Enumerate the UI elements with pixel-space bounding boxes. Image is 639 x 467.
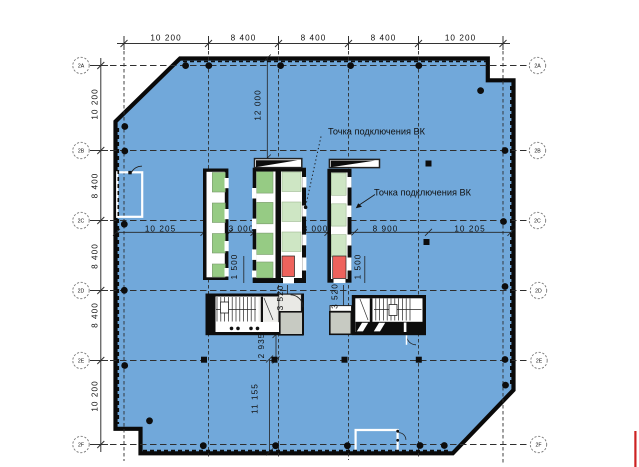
svg-text:10 200: 10 200 — [150, 34, 181, 43]
svg-text:2F: 2F — [535, 443, 541, 449]
svg-text:8 900: 8 900 — [373, 225, 399, 234]
svg-text:11 155: 11 155 — [251, 383, 260, 414]
svg-text:2D: 2D — [535, 289, 542, 295]
svg-text:1 500: 1 500 — [354, 254, 363, 280]
svg-text:2A: 2A — [534, 64, 541, 70]
svg-text:Точка подключения ВК: Точка подключения ВК — [374, 188, 472, 198]
svg-text:2B: 2B — [78, 149, 85, 155]
svg-text:3 000: 3 000 — [229, 225, 255, 234]
svg-text:2E: 2E — [536, 359, 543, 365]
svg-text:8 400: 8 400 — [91, 173, 100, 199]
svg-text:3 000: 3 000 — [303, 225, 329, 234]
svg-text:2B: 2B — [534, 149, 541, 155]
svg-text:10 205: 10 205 — [145, 225, 176, 234]
svg-text:8 400: 8 400 — [231, 34, 257, 43]
svg-text:10 200: 10 200 — [91, 380, 100, 411]
svg-text:8 400: 8 400 — [91, 302, 100, 328]
svg-text:10 205: 10 205 — [454, 225, 485, 234]
svg-text:1 500: 1 500 — [230, 254, 239, 280]
svg-text:3 520: 3 520 — [276, 285, 285, 311]
svg-text:Точка подключения ВК: Точка подключения ВК — [328, 127, 426, 137]
svg-text:10 200: 10 200 — [91, 88, 100, 119]
svg-text:2E: 2E — [78, 359, 85, 365]
svg-text:3 520: 3 520 — [331, 283, 340, 309]
svg-text:8 400: 8 400 — [301, 34, 327, 43]
svg-text:2C: 2C — [534, 219, 541, 225]
svg-text:2 935: 2 935 — [257, 333, 266, 359]
svg-text:12 000: 12 000 — [254, 89, 263, 120]
svg-text:2A: 2A — [78, 64, 85, 70]
svg-text:2D: 2D — [78, 289, 85, 295]
svg-text:10 200: 10 200 — [445, 34, 476, 43]
svg-text:2C: 2C — [78, 219, 85, 225]
svg-text:2F: 2F — [78, 443, 84, 449]
svg-text:8 400: 8 400 — [91, 243, 100, 269]
svg-text:8 400: 8 400 — [371, 34, 397, 43]
